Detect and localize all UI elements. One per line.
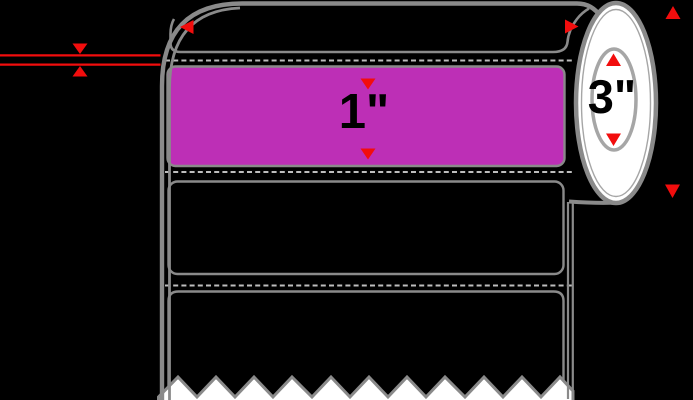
label-roll-diagram: 1" 3" (0, 0, 693, 400)
roll-outer-edge (162, 4, 601, 400)
core-diameter-text: 3" (588, 70, 636, 123)
label-height-text: 1" (339, 85, 389, 139)
od-arrow-down-icon (665, 185, 680, 199)
liner-tear-zigzag (159, 377, 574, 400)
diagram-canvas: 1" 3" (0, 0, 693, 400)
label-outline-2 (169, 182, 564, 275)
od-arrow-up-icon (666, 6, 681, 19)
gap-arrow-up-icon (73, 66, 88, 77)
gap-arrow-down-icon (73, 44, 88, 55)
top-partial-label-outline (171, 9, 590, 53)
